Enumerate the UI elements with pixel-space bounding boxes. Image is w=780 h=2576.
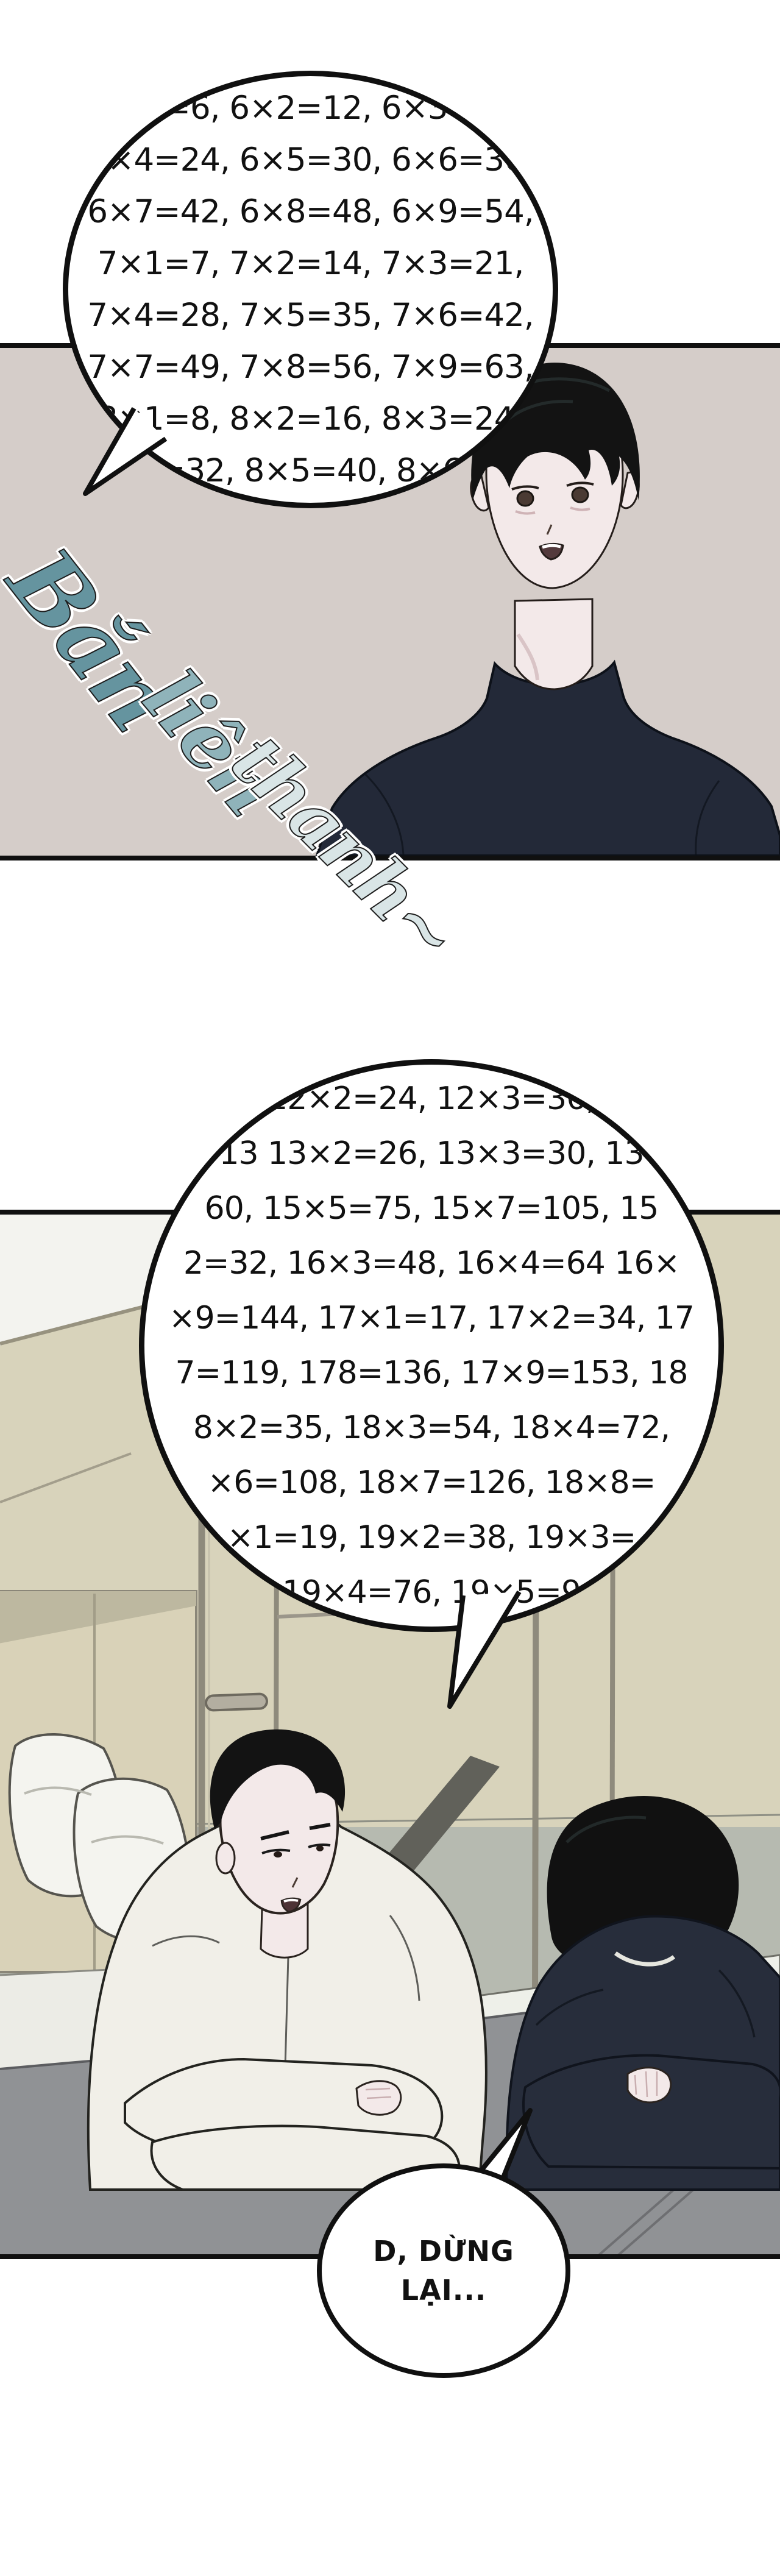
wall-seam	[0, 1453, 131, 1502]
character-1-shirt	[317, 662, 780, 856]
character-3-hand	[628, 2068, 671, 2102]
bubble-2-line: ×1=19, 19×2=38, 19×3=	[227, 1510, 636, 1565]
bubble-1-line: 7×1=7, 7×2=14, 7×3=21,	[97, 238, 524, 289]
eye-left	[517, 491, 533, 506]
pupil	[316, 1845, 324, 1851]
speech-bubble-2: 12×2=24, 12×3=36, 13 13×2=26, 13×3=30, 1…	[139, 1059, 724, 1632]
eye-right	[572, 488, 588, 502]
pupil	[274, 1851, 282, 1857]
bubble-2-line: ×9=144, 17×1=17, 17×2=34, 17	[169, 1291, 694, 1346]
bubble-2-line: ×6=108, 18×7=126, 18×8=	[208, 1455, 656, 1510]
bubble-2-line: 13 13×2=26, 13×3=30, 13	[219, 1126, 643, 1181]
bubble-3-line: D, DỪNG	[373, 2232, 514, 2271]
bubble-1-line: 6×4=24, 6×5=30, 6×6=36,	[87, 134, 533, 186]
speech-bubble-3: D, DỪNG LẠI...	[317, 2163, 570, 2378]
bubble-1-line: 7×7=49, 7×8=56, 7×9=63,	[87, 341, 533, 393]
bubble-2-line: 7=119, 178=136, 17×9=153, 18	[175, 1346, 688, 1400]
bubble-2-line: 2=32, 16×3=48, 16×4=64 16×	[183, 1236, 679, 1291]
door-handle	[206, 1694, 268, 1710]
bubble-1-line: 6×1=6, 6×2=12, 6×3=18,	[97, 82, 524, 134]
bubble-2-line: 60, 15×5=75, 15×7=105, 15	[205, 1181, 659, 1236]
speech-bubble-1-tail	[73, 396, 183, 503]
character-1-neck	[515, 599, 592, 689]
bubble-1-line: 7×4=28, 7×5=35, 7×6=42,	[87, 289, 533, 341]
teeth	[284, 1900, 298, 1901]
comic-page: 6×1=6, 6×2=12, 6×3=18, 6×4=24, 6×5=30, 6…	[0, 0, 780, 2576]
teeth	[542, 545, 561, 547]
bubble-2-line: 8×2=35, 18×3=54, 18×4=72,	[193, 1400, 670, 1455]
bubble-2-line: 12×2=24, 12×3=36,	[268, 1071, 595, 1126]
bubble-3-line: LẠI...	[401, 2271, 486, 2310]
speech-bubble-2-tail	[427, 1578, 536, 1719]
ear	[216, 1843, 235, 1873]
bubble-1-line: 6×7=42, 6×8=48, 6×9=54,	[87, 186, 533, 238]
